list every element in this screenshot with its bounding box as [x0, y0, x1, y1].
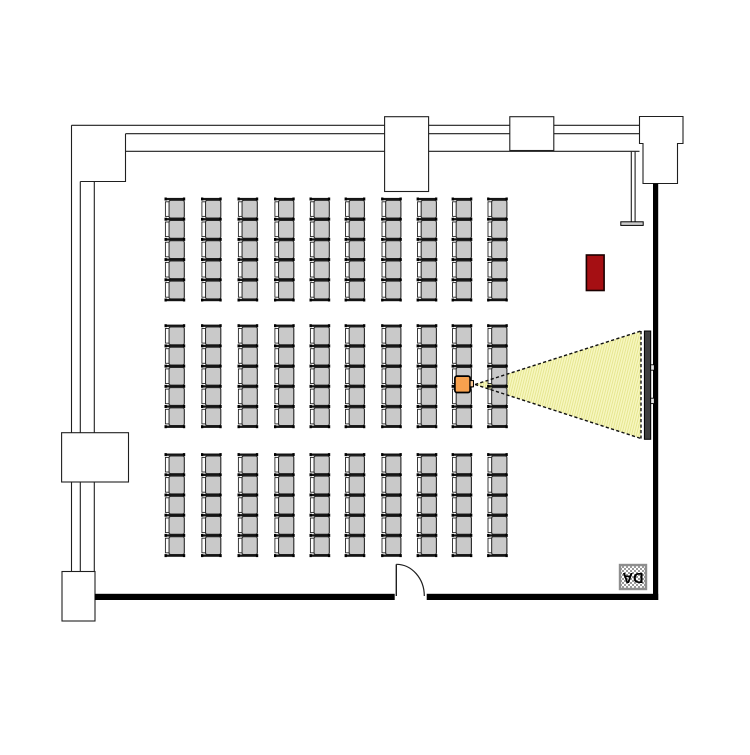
svg-text:DA: DA	[622, 569, 643, 585]
